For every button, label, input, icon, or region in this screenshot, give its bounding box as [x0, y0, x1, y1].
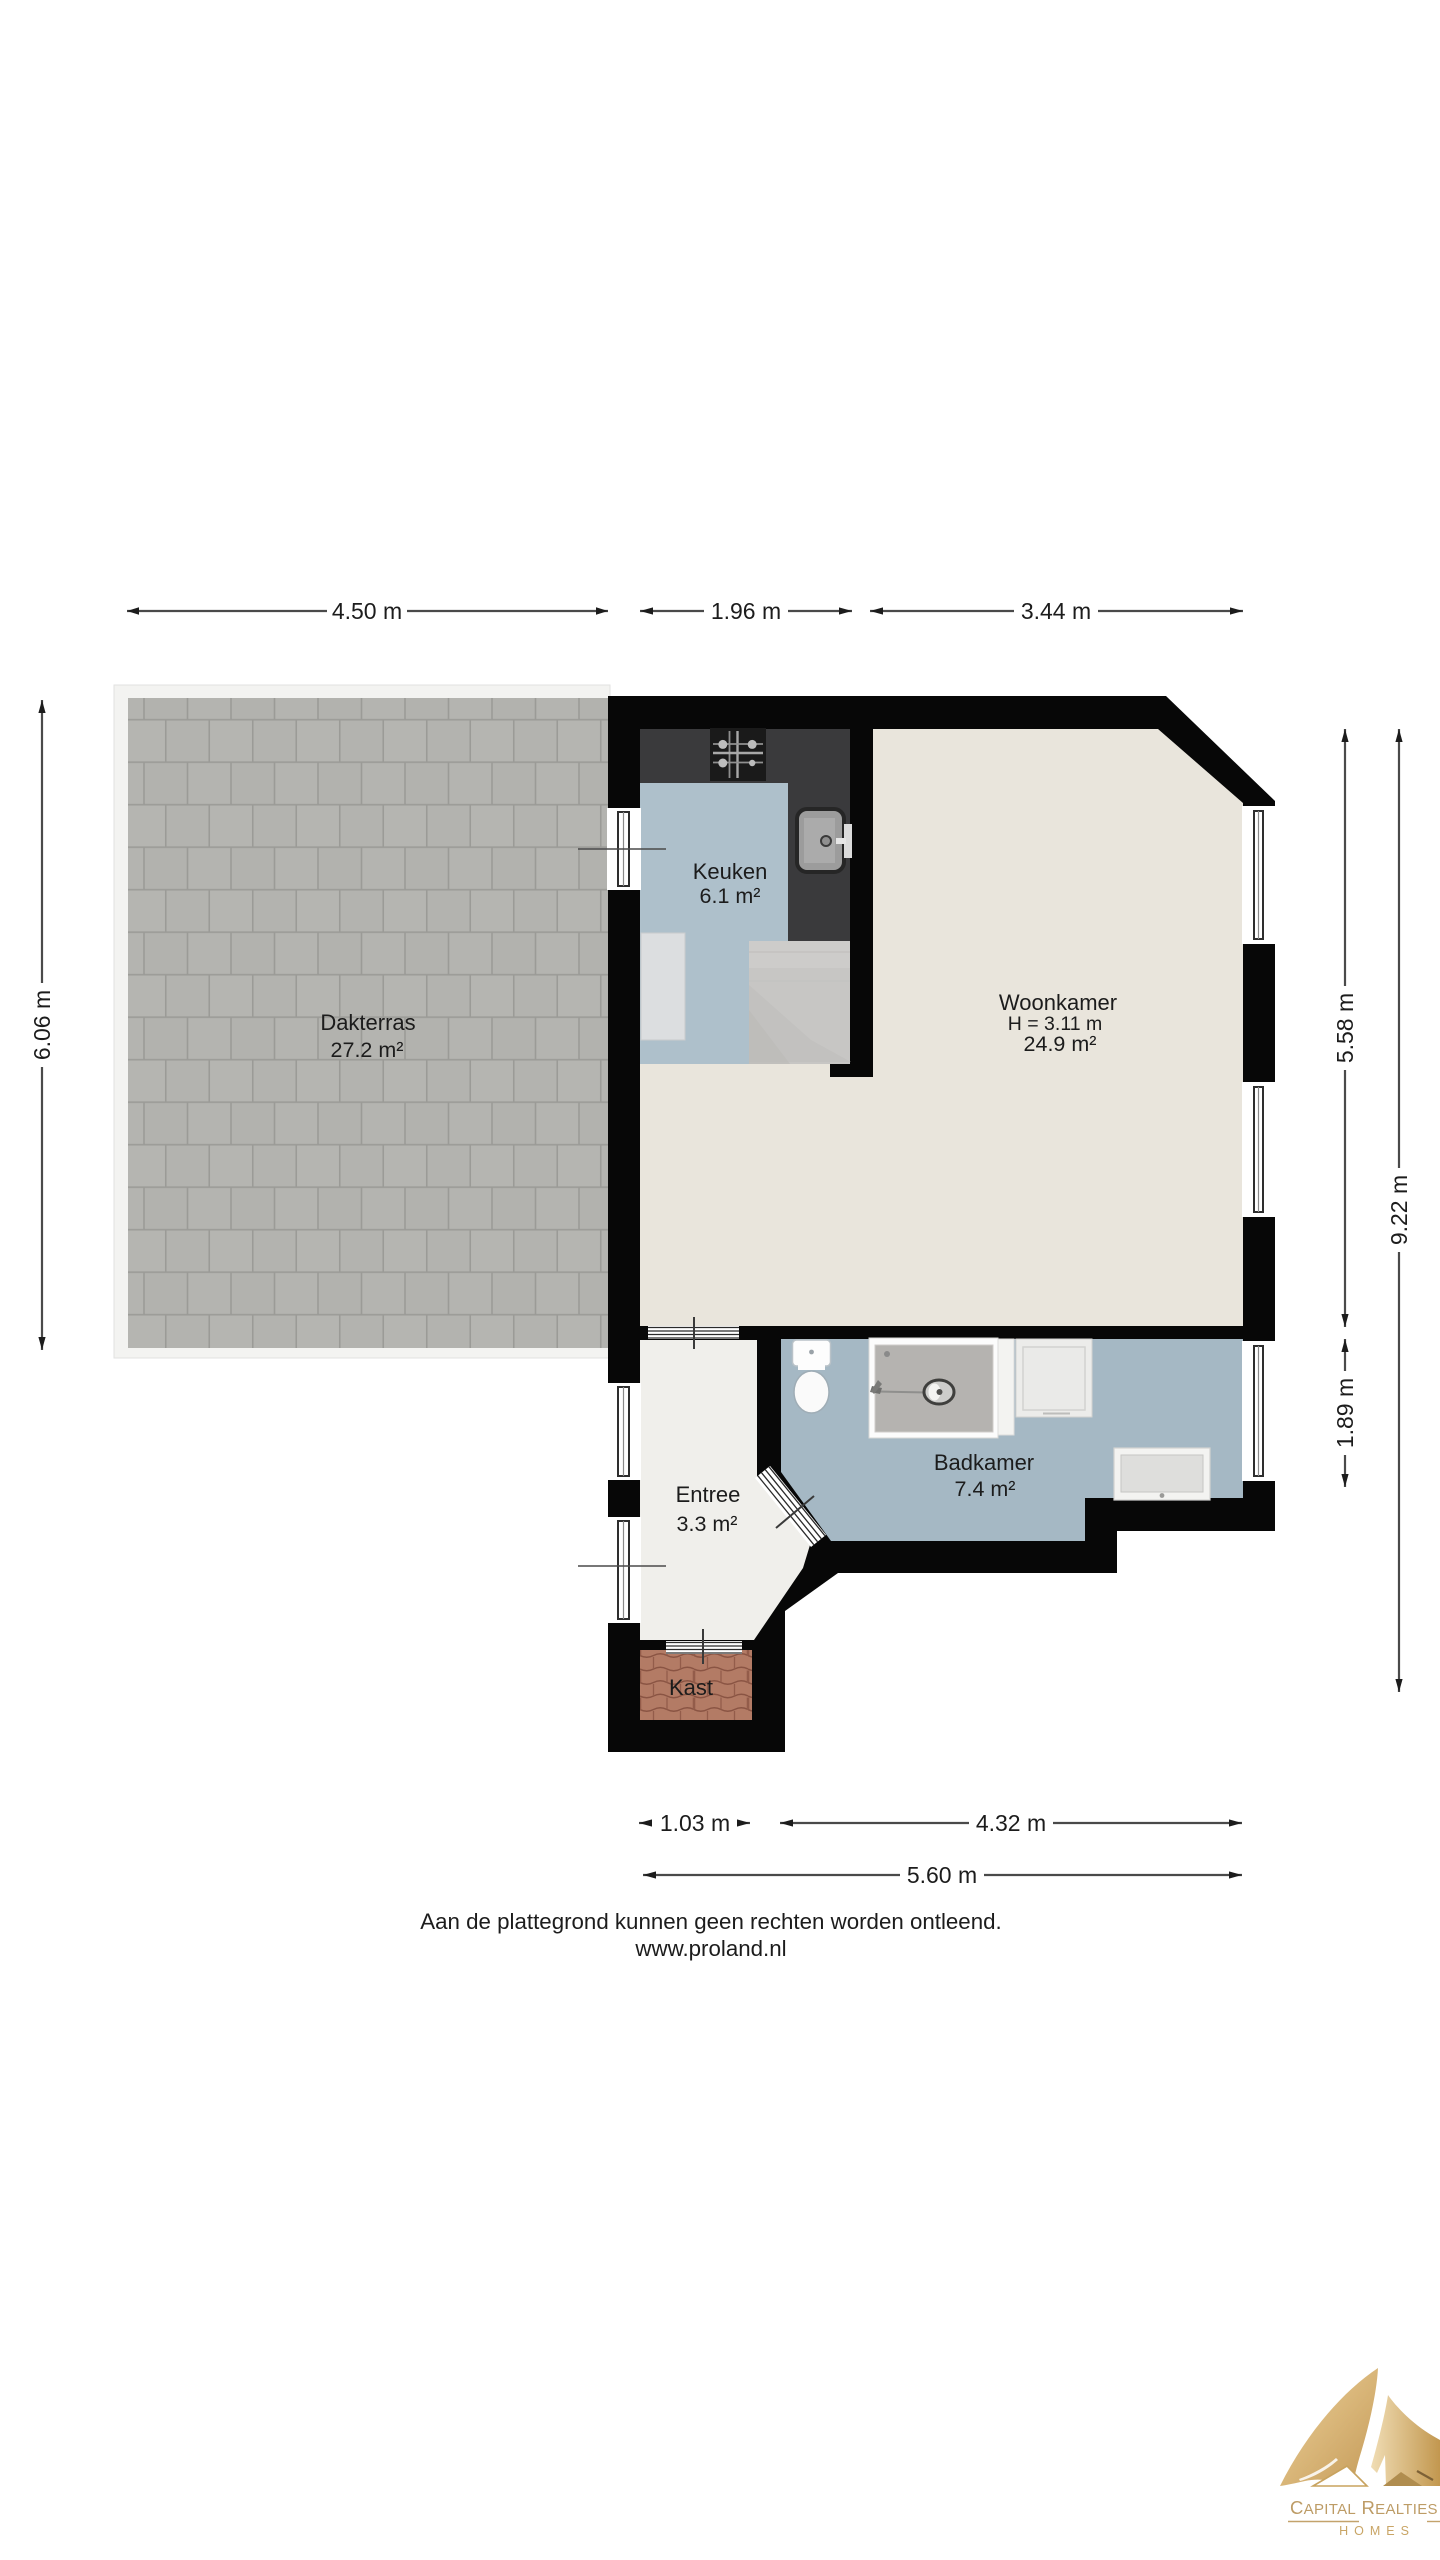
- svg-text:4.50 m: 4.50 m: [332, 598, 402, 624]
- svg-text:HOMES: HOMES: [1339, 2524, 1415, 2538]
- svg-text:Keuken: Keuken: [693, 859, 768, 884]
- svg-text:Woonkamer: Woonkamer: [999, 990, 1117, 1015]
- svg-text:CAPITAL REALTIES: CAPITAL REALTIES: [1290, 2497, 1438, 2518]
- svg-text:6.06 m: 6.06 m: [29, 990, 55, 1060]
- svg-text:1.96 m: 1.96 m: [711, 598, 781, 624]
- svg-text:3.44 m: 3.44 m: [1021, 598, 1091, 624]
- svg-text:7.4 m²: 7.4 m²: [955, 1477, 1016, 1501]
- svg-text:24.9 m²: 24.9 m²: [1024, 1032, 1097, 1056]
- svg-text:3.3 m²: 3.3 m²: [677, 1512, 738, 1536]
- svg-text:6.1 m²: 6.1 m²: [700, 884, 761, 908]
- svg-text:4.32 m: 4.32 m: [976, 1810, 1046, 1836]
- svg-text:Entree: Entree: [676, 1482, 741, 1507]
- svg-text:5.58 m: 5.58 m: [1332, 993, 1358, 1063]
- svg-text:www.proland.nl: www.proland.nl: [634, 1936, 786, 1961]
- svg-text:Badkamer: Badkamer: [934, 1450, 1034, 1475]
- svg-text:9.22 m: 9.22 m: [1386, 1175, 1412, 1245]
- svg-text:Aan de plattegrond kunnen geen: Aan de plattegrond kunnen geen rechten w…: [420, 1909, 1001, 1934]
- svg-text:5.60 m: 5.60 m: [907, 1862, 977, 1888]
- svg-text:1.03 m: 1.03 m: [660, 1810, 730, 1836]
- svg-text:Kast: Kast: [669, 1675, 713, 1700]
- svg-text:1.89 m: 1.89 m: [1332, 1378, 1358, 1448]
- svg-text:27.2 m²: 27.2 m²: [331, 1038, 404, 1062]
- svg-text:Dakterras: Dakterras: [320, 1010, 415, 1035]
